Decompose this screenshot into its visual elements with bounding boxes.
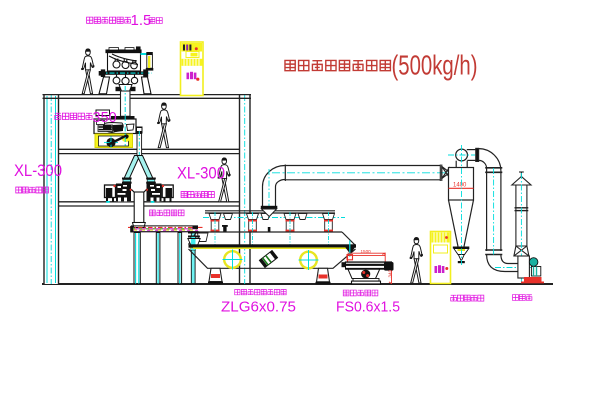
svg-text:XL-300: XL-300: [14, 161, 62, 180]
svg-text:XL-300: XL-300: [177, 164, 225, 183]
svg-text:340: 340: [387, 269, 392, 277]
svg-text:350: 350: [93, 110, 117, 126]
svg-text:1400: 1400: [453, 183, 467, 189]
svg-text:1.5: 1.5: [131, 12, 152, 29]
svg-text:ZLG6x0.75: ZLG6x0.75: [221, 300, 296, 316]
svg-text:(500kg/h): (500kg/h): [392, 50, 478, 81]
svg-text:FS0.6x1.5: FS0.6x1.5: [336, 300, 400, 316]
svg-text:1500: 1500: [361, 249, 372, 254]
